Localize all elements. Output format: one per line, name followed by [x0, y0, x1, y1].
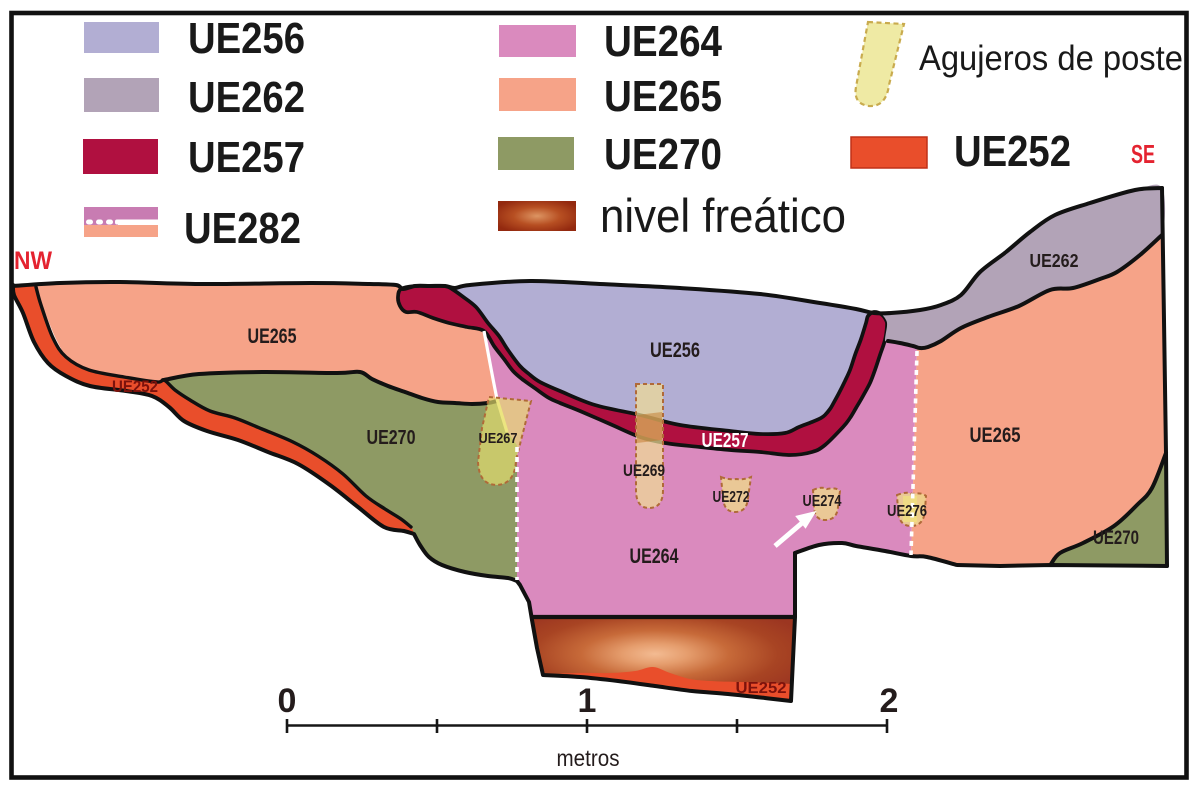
svg-text:UE270: UE270 — [1093, 528, 1139, 549]
svg-text:UE272: UE272 — [713, 489, 750, 506]
svg-text:UE262: UE262 — [188, 73, 305, 122]
svg-text:UE269: UE269 — [623, 461, 665, 480]
svg-text:UE252: UE252 — [112, 377, 158, 396]
svg-text:UE282: UE282 — [184, 204, 301, 253]
svg-text:UE256: UE256 — [188, 14, 305, 63]
svg-text:UE252: UE252 — [736, 680, 787, 697]
svg-text:2: 2 — [880, 682, 899, 720]
svg-text:UE265: UE265 — [604, 72, 722, 121]
svg-text:SE: SE — [1131, 139, 1155, 169]
svg-text:nivel freático: nivel freático — [600, 189, 846, 242]
svg-text:UE262: UE262 — [1030, 251, 1079, 271]
svg-text:UE256: UE256 — [650, 339, 700, 362]
svg-text:UE265: UE265 — [248, 325, 297, 348]
svg-text:UE265: UE265 — [970, 424, 1021, 447]
svg-text:UE264: UE264 — [630, 545, 679, 568]
svg-text:UE276: UE276 — [887, 503, 927, 520]
svg-text:NW: NW — [14, 247, 52, 275]
svg-text:0: 0 — [278, 682, 297, 720]
svg-text:1: 1 — [578, 682, 597, 720]
svg-text:UE274: UE274 — [803, 493, 842, 510]
svg-text:UE270: UE270 — [367, 427, 416, 449]
svg-text:UE252: UE252 — [954, 127, 1071, 176]
svg-text:UE264: UE264 — [604, 17, 722, 66]
svg-text:UE257: UE257 — [188, 133, 305, 182]
svg-text:UE257: UE257 — [702, 430, 749, 452]
svg-text:UE270: UE270 — [604, 130, 722, 179]
svg-text:Agujeros de poste: Agujeros de poste — [919, 39, 1183, 78]
svg-text:metros: metros — [557, 745, 620, 771]
svg-text:UE267: UE267 — [479, 430, 518, 447]
